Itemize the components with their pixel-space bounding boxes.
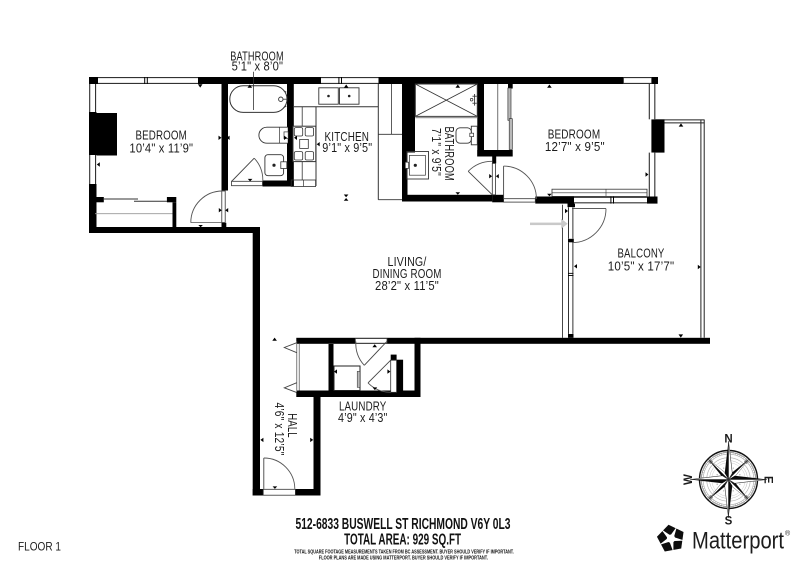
svg-text:Matterport: Matterport: [692, 528, 784, 555]
svg-text:HALL: HALL: [285, 413, 299, 438]
svg-text:®: ®: [785, 530, 791, 538]
svg-text:BATHROOM: BATHROOM: [442, 126, 456, 181]
svg-text:9’1" x 9’5": 9’1" x 9’5": [322, 141, 372, 155]
svg-text:12’7" x 9’5": 12’7" x 9’5": [545, 140, 605, 154]
svg-text:N: N: [724, 434, 732, 446]
svg-text:28’2" x 11’5": 28’2" x 11’5": [375, 279, 439, 293]
svg-text:7’1" x 9’5": 7’1" x 9’5": [429, 128, 443, 176]
svg-text:5’1" x 8’0": 5’1" x 8’0": [232, 59, 284, 73]
svg-text:10’5" x 17’7": 10’5" x 17’7": [608, 259, 675, 273]
svg-text:4’6" x 12’5": 4’6" x 12’5": [272, 403, 286, 456]
svg-text:E: E: [761, 476, 773, 484]
svg-text:FLOOR 1: FLOOR 1: [18, 539, 61, 553]
svg-text:4’9" x 4’3": 4’9" x 4’3": [338, 411, 388, 425]
svg-text:FLOOR PLANS ARE MADE USING MAT: FLOOR PLANS ARE MADE USING MATTERPORT. B…: [319, 555, 488, 561]
svg-text:10’4" x 11’9": 10’4" x 11’9": [129, 141, 193, 155]
svg-text:S: S: [725, 516, 733, 528]
svg-text:TOTAL AREA: 929 SQ.FT: TOTAL AREA: 929 SQ.FT: [344, 532, 461, 549]
svg-text:W: W: [683, 474, 695, 485]
